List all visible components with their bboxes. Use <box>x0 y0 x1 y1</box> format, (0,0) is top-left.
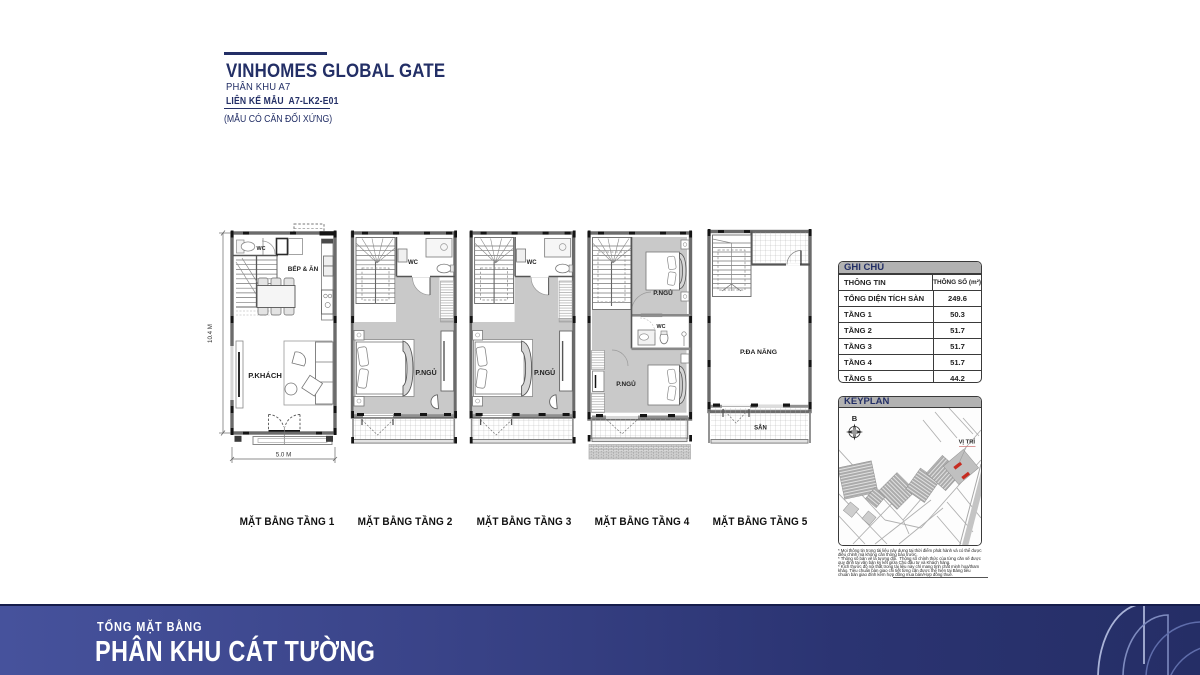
svg-text:5.0 M: 5.0 M <box>276 452 291 459</box>
svg-text:WC: WC <box>408 260 419 266</box>
svg-text:P.KHÁCH: P.KHÁCH <box>248 371 282 380</box>
svg-text:P.NGỦ: P.NGỦ <box>653 288 673 297</box>
svg-text:P.NGỦ: P.NGỦ <box>616 379 636 388</box>
svg-text:WC: WC <box>657 324 666 330</box>
svg-text:WC: WC <box>257 246 266 252</box>
svg-text:P.ĐA NĂNG: P.ĐA NĂNG <box>740 347 777 356</box>
svg-text:P.NGỦ: P.NGỦ <box>415 368 436 377</box>
svg-text:B: B <box>852 414 858 423</box>
svg-text:SÂN: SÂN <box>754 425 767 432</box>
svg-text:VỊ TRÍ: VỊ TRÍ <box>959 438 976 446</box>
svg-text:10.4 M: 10.4 M <box>207 324 214 343</box>
